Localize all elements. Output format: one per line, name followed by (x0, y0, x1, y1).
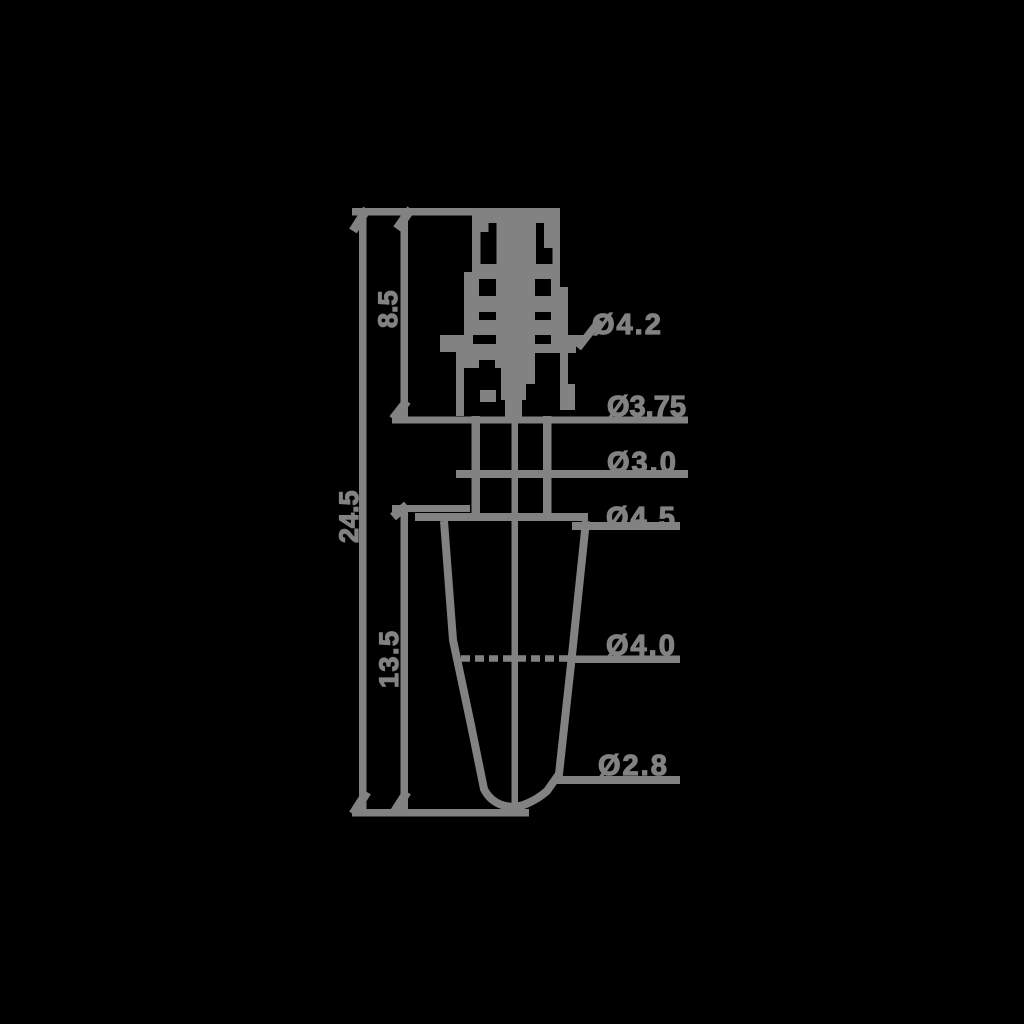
svg-text:13.5: 13.5 (374, 629, 404, 688)
svg-text:Ø4.5: Ø4.5 (606, 502, 677, 534)
svg-text:8.5: 8.5 (373, 290, 403, 328)
svg-text:Ø2.8: Ø2.8 (598, 750, 669, 782)
svg-text:Ø4.2: Ø4.2 (592, 309, 663, 341)
svg-text:Ø4.0: Ø4.0 (606, 630, 677, 662)
svg-text:Ø3.75: Ø3.75 (607, 391, 686, 423)
svg-text:24.5: 24.5 (334, 490, 364, 543)
svg-text:Ø3.0: Ø3.0 (607, 447, 678, 479)
